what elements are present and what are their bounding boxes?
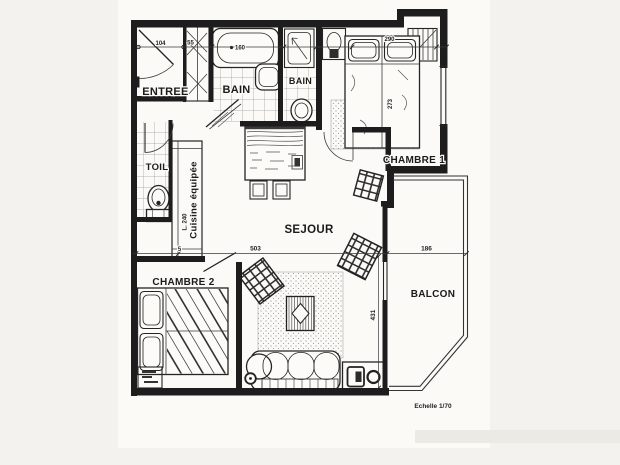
- label-entree: ENTREE: [142, 86, 188, 98]
- floor-plan-page: ENTREE BAIN BAIN CHAMBRE 1 CHAMBRE 2 SEJ…: [0, 0, 620, 465]
- dim-sejour-profondeur: 431: [370, 309, 377, 320]
- coffee-table-icon: [287, 297, 315, 331]
- tv-stand-icon: [343, 362, 385, 392]
- label-balcon: BALCON: [411, 289, 456, 300]
- dim-chambre1-profondeur: 273: [388, 98, 394, 109]
- label-echelle: Echelle 1/70: [414, 403, 452, 410]
- dim-placard: 55: [187, 41, 194, 47]
- bathtub-icon: [213, 29, 279, 68]
- dim-sejour-largeur: 503: [250, 246, 261, 253]
- label-sejour: SEJOUR: [284, 224, 333, 236]
- dim-porte-entree: 104: [155, 41, 166, 47]
- floor-plan: ENTREE BAIN BAIN CHAMBRE 1 CHAMBRE 2 SEJ…: [0, 0, 620, 465]
- dim-baignoire: 160: [235, 46, 246, 52]
- toilet-icon: [147, 186, 172, 222]
- label-chambre2: CHAMBRE 2: [152, 277, 214, 288]
- label-bain-gauche: BAIN: [222, 84, 250, 96]
- scan-smudge: [415, 430, 620, 443]
- sofa-icon: [245, 351, 340, 391]
- label-bain-droite: BAIN: [289, 76, 312, 86]
- label-chambre1: CHAMBRE 1: [383, 155, 445, 166]
- dim-balcon-largeur: 186: [421, 246, 432, 253]
- label-toilette: TOIL: [146, 162, 169, 173]
- dim-cuisine-longueur: L. 240: [183, 213, 189, 231]
- speaker-icon: [368, 371, 380, 383]
- toilet-icon: [291, 99, 312, 122]
- label-cuisine: Cuisine équipée: [189, 161, 200, 238]
- dim-chambre1-largeur: 290: [384, 37, 395, 43]
